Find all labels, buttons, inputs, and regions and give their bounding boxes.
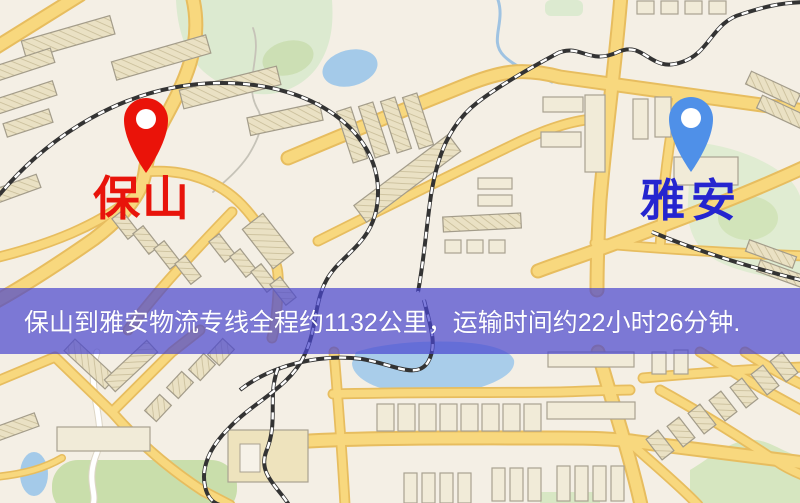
origin-pin-icon[interactable]: [119, 93, 173, 175]
origin-label: 保山: [93, 177, 191, 224]
pin-hole: [681, 108, 701, 128]
destination-label: 雅安: [640, 178, 742, 223]
pin-hole: [136, 109, 156, 129]
route-info-text: 保山到雅安物流专线全程约1132公里，运输时间约22小时26分钟.: [24, 303, 740, 339]
route-info-banner: 保山到雅安物流专线全程约1132公里，运输时间约22小时26分钟.: [0, 288, 800, 354]
destination-pin-icon[interactable]: [664, 92, 718, 174]
map-background: [0, 0, 800, 503]
map-screenshot: 保山 雅安 保山到雅安物流专线全程约1132公里，运输时间约22小时26分钟.: [0, 0, 800, 503]
